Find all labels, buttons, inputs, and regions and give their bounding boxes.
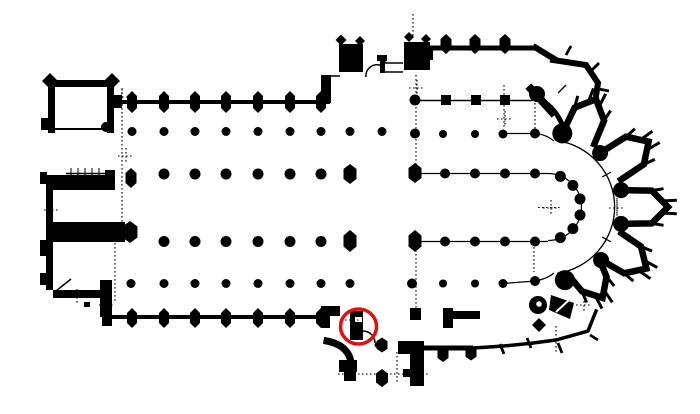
floor-plan-page	[0, 0, 700, 414]
walls-and-piers	[40, 32, 609, 387]
cathedral-floor-plan	[0, 0, 700, 414]
apse-ambulatory-chapels	[548, 88, 677, 308]
